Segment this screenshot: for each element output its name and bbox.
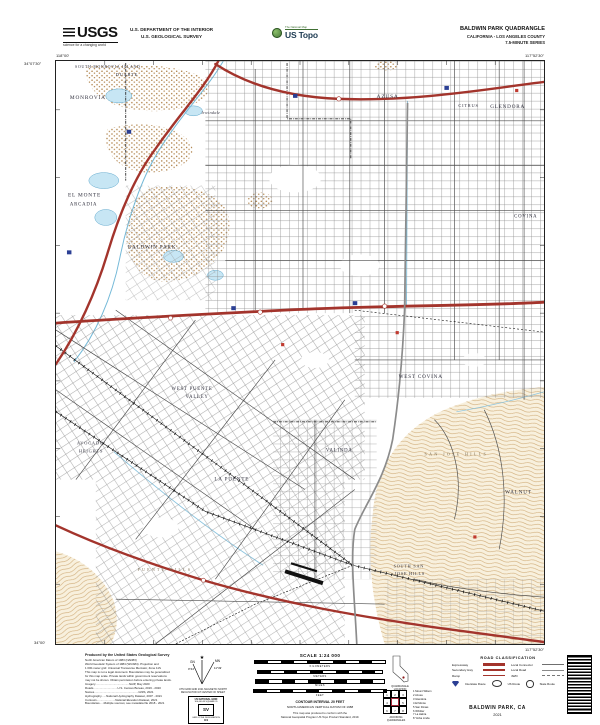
usgs-wave-icon [63, 28, 75, 38]
place-label-el-monte: EL MONTE [68, 193, 101, 199]
legend-expressway: Expressway [452, 663, 468, 667]
corner-coord-top-left-lon: 118°00' [56, 53, 69, 58]
scale-bar-m [257, 670, 383, 674]
adjoining-caption: ADJOINING QUADRANGLES [383, 716, 409, 722]
scale-unit-km: KILOMETERS [253, 665, 387, 668]
dept-line-1: U.S. DEPARTMENT OF THE INTERIOR [130, 27, 213, 34]
place-label-walnut: WALNUT [505, 490, 532, 496]
usng-box: US NATIONAL GRID 100,000-M SQUARE ID SV … [188, 696, 224, 724]
adjoining-cell: 8 [399, 706, 407, 714]
grid-north-value: 0°44' [188, 667, 195, 671]
magnetic-north-label: MN [215, 659, 221, 663]
adjoining-cell: 2 [391, 690, 399, 698]
place-label-monrovia: MONROVIA [70, 95, 106, 101]
legend-4wd: 4WD [511, 674, 518, 678]
department-lines: U.S. DEPARTMENT OF THE INTERIOR U.S. GEO… [130, 27, 213, 41]
us-route-shield-icon [492, 680, 502, 687]
globe-icon [272, 28, 282, 38]
ramp-line-sample [483, 675, 505, 676]
road-class-title: ROAD CLASSIFICATION [452, 656, 564, 660]
place-label-west-puente: WEST PUENTE [172, 387, 213, 392]
barcode [567, 655, 592, 714]
grid-north-label: GN [190, 660, 195, 664]
declination-diagram: ★ GN 0°44' MN 11°49' [180, 653, 226, 687]
map-area: SOUTH MONROVIA ISLAND DUARTE MONROVIA Ir… [55, 60, 545, 645]
adjoining-cell: 5 [399, 698, 407, 706]
place-label-jose-hills: JOSE HILLS [395, 571, 425, 576]
california-outline [389, 655, 411, 683]
adjoining-cell: 3 [399, 690, 407, 698]
place-label-valinda: VALINDA [326, 449, 353, 454]
place-label-azusa: AZUSA [377, 94, 399, 100]
usng-square-id: SV [198, 704, 214, 716]
place-label-citrus: CITRUS [458, 103, 478, 108]
adjoining-quadrangles: 1 2 3 4 5 6 7 8 ADJOINING QUADRANGLES 1 … [383, 690, 409, 722]
legend-state-route: State Route [540, 682, 555, 686]
state-route-shield-icon [526, 680, 534, 688]
declination-arrows: ★ GN 0°44' MN 11°49' [180, 653, 226, 687]
place-label-avocado-heights: HEIGHTS [79, 449, 103, 454]
scale-unit-miles: MILES [253, 684, 387, 687]
expressway-line-sample [483, 663, 505, 665]
local-connector-line-sample [542, 664, 564, 665]
interstate-shield-icon [452, 681, 459, 687]
quadrangle-title: BALDWIN PARK QUADRANGLE [460, 25, 545, 34]
scale-title: SCALE 1:24 000 [253, 653, 387, 658]
contour-interval: CONTOUR INTERVAL 20 FEET [253, 700, 387, 704]
map-year: 2021 [445, 713, 550, 717]
standard-line-2: National Geospatial Program US Topo Prod… [253, 716, 387, 720]
local-road-line-sample [542, 670, 564, 671]
place-label-puente-hills: PUENTE HILLS [138, 568, 193, 572]
place-label-avocado: AVOCADO [77, 441, 104, 446]
ustopo-logo: The National Map US Topo [272, 25, 318, 40]
usgs-logo: USGS science for a changing world [63, 24, 118, 47]
quadrangle-location: QUADRANGLE LOCATION [385, 655, 415, 691]
dept-line-2: U.S. GEOLOGICAL SURVEY [130, 34, 213, 41]
adjoining-grid: 1 2 3 4 5 6 7 8 [383, 690, 409, 714]
corner-coord-bottom-right-lon: 117°52'30" [525, 647, 544, 652]
usgs-logo-text: USGS [77, 24, 118, 41]
scale-bar-miles [255, 679, 385, 683]
legend-ramp: Ramp [452, 674, 460, 678]
magnetic-north-value: 11°49' [214, 666, 222, 670]
scale-bar-feet [253, 689, 387, 693]
adjoining-cell: 1 [383, 690, 391, 698]
place-label-west-covina: WEST COVINA [399, 374, 443, 380]
scale-bar-km [254, 660, 386, 664]
ustopo-brand: US Topo [285, 30, 318, 40]
map-name-block: BALDWIN PARK, CA 2021 [445, 705, 550, 717]
credit-line: Boundaries.....Multiple sources; see met… [85, 702, 203, 706]
map-name: BALDWIN PARK, CA [445, 705, 550, 711]
scale-block: SCALE 1:24 000 KILOMETERS METERS MILES F… [253, 653, 387, 720]
corner-coord-bottom-left-lat: 34°00' [34, 640, 45, 645]
corner-coord-top-right-lon: 117°52'30" [525, 53, 544, 58]
sheet-title-block: BALDWIN PARK QUADRANGLE CALIFORNIA - LOS… [460, 25, 545, 47]
quad-location-dot [402, 676, 404, 678]
declination-caption: UTM GRID AND 2021 MAGNETIC NORTH DECLINA… [168, 688, 238, 695]
place-label-south-san: SOUTH SAN [394, 563, 424, 568]
adjoining-cell: 4 [383, 698, 391, 706]
scale-unit-feet: FEET [253, 694, 387, 697]
corner-coord-top-left-lat: 34°07'30" [24, 61, 41, 66]
usgs-tagline: science for a changing world [63, 42, 118, 48]
usng-zone: 11S [190, 719, 222, 722]
place-label-arcadia: ARCADIA [70, 203, 97, 208]
place-label-west-puente-valley: VALLEY [185, 395, 208, 400]
place-label-san-jose-hills: SAN JOSE HILLS [424, 452, 488, 457]
fourwd-line-sample [542, 675, 564, 676]
place-label-glendora: GLENDORA [490, 104, 525, 110]
place-label-covina: COVINA [514, 214, 537, 219]
road-classification-legend: ROAD CLASSIFICATION Expressway Local Con… [452, 656, 564, 688]
secondary-line-sample [483, 669, 505, 671]
legend-us-route: US Route [508, 682, 521, 686]
vertical-datum: NORTH AMERICAN VERTICAL DATUM OF 1988 [253, 705, 387, 709]
legend-local-road: Local Road [511, 668, 526, 672]
adjoining-cell-center [391, 698, 399, 706]
map-canvas: SOUTH MONROVIA ISLAND DUARTE MONROVIA Ir… [56, 61, 544, 644]
legend-interstate: Interstate Route [465, 682, 486, 686]
place-label-la-puente: LA PUENTE [214, 477, 249, 483]
place-label-south-monrovia-island: SOUTH MONROVIA ISLAND [75, 65, 140, 69]
series-line: 7.5-MINUTE SERIES [460, 40, 545, 47]
usgs-topo-sheet: USGS science for a changing world U.S. D… [0, 0, 600, 725]
place-label-duarte: DUARTE [116, 72, 138, 77]
adjoining-cell: 6 [383, 706, 391, 714]
place-label-irwindale: Irwindale [200, 110, 220, 115]
usng-subtitle: 100,000-M SQUARE ID [190, 701, 222, 703]
true-north-star-icon: ★ [200, 655, 205, 661]
place-label-baldwin-park: BALDWIN PARK [128, 244, 177, 250]
scale-unit-m: METERS [253, 675, 387, 678]
adjoining-cell: 7 [391, 706, 399, 714]
legend-local-connector: Local Connector [511, 663, 533, 667]
legend-secondary-hwy: Secondary Hwy [452, 668, 473, 672]
